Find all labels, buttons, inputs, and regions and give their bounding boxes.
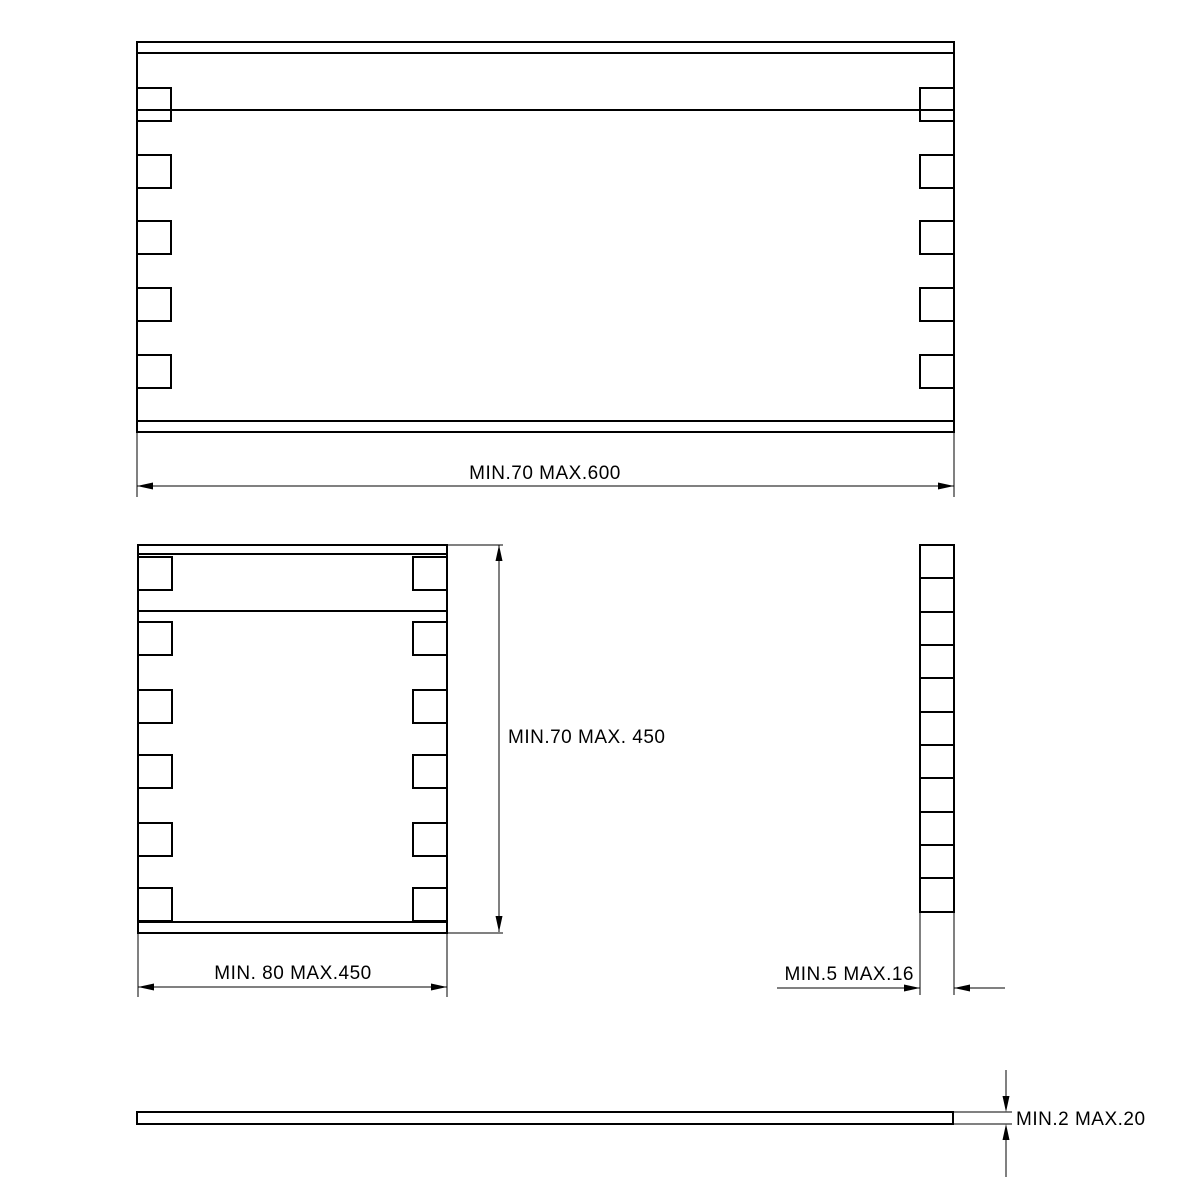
arrowhead-right-icon (938, 483, 954, 490)
arrowhead-up-icon (1003, 1124, 1010, 1140)
joint-slot (138, 755, 172, 788)
joint-slot (138, 823, 172, 856)
lid-thickness-label: MIN.2 MAX.20 (1016, 1109, 1146, 1130)
joint-slot (137, 221, 171, 254)
joint-slot (137, 155, 171, 188)
joint-slot (920, 155, 954, 188)
lid-edge-view (137, 1112, 953, 1124)
panel-edge-view (920, 545, 954, 912)
arrowhead-left-icon (137, 483, 153, 490)
dimension-panel-thickness: MIN.5 MAX.16 (777, 912, 1005, 995)
joint-slot (920, 288, 954, 321)
dimension-end-width: MIN. 80 MAX.450 (138, 933, 447, 997)
arrowhead-right-icon (431, 984, 447, 991)
box-joint-drawing: MIN.70 MAX.600 MIN.70 MAX. 450 (0, 0, 1200, 1200)
end-panel-view (138, 545, 447, 933)
dimension-front-length: MIN.70 MAX.600 (137, 432, 954, 497)
joint-slot (137, 288, 171, 321)
arrowhead-left-icon (138, 984, 154, 991)
joint-slot (413, 557, 447, 590)
joint-slot (413, 823, 447, 856)
side-height-label: MIN.70 MAX. 450 (508, 727, 665, 748)
joint-slot (413, 690, 447, 723)
joint-slot (137, 88, 171, 121)
front-length-label: MIN.70 MAX.600 (469, 463, 621, 484)
end-panel-outline (138, 545, 447, 933)
joint-slot (138, 888, 172, 921)
arrowhead-left-icon (954, 985, 970, 992)
arrowhead-down-icon (496, 916, 503, 932)
arrowhead-up-icon (496, 545, 503, 561)
arrowhead-right-icon (904, 985, 920, 992)
joint-slot (137, 355, 171, 388)
front-panel-outline (137, 42, 954, 432)
joint-slot (920, 355, 954, 388)
joint-slot (138, 622, 172, 655)
joint-slot (413, 888, 447, 921)
panel-thickness-label: MIN.5 MAX.16 (784, 964, 914, 985)
front-panel-view (137, 42, 954, 432)
end-width-label: MIN. 80 MAX.450 (214, 963, 371, 984)
joint-slot (413, 755, 447, 788)
dimension-side-height: MIN.70 MAX. 450 (447, 545, 665, 933)
technical-drawing-canvas: MIN.70 MAX.600 MIN.70 MAX. 450 (0, 0, 1200, 1200)
joint-slot (138, 557, 172, 590)
arrowhead-down-icon (1003, 1096, 1010, 1112)
panel-edge-outline (920, 545, 954, 912)
joint-slot (138, 690, 172, 723)
dimension-lid-thickness: MIN.2 MAX.20 (953, 1070, 1146, 1177)
joint-slot (920, 88, 954, 121)
joint-slot (413, 622, 447, 655)
joint-slot (920, 221, 954, 254)
lid-edge-outline (137, 1112, 953, 1124)
